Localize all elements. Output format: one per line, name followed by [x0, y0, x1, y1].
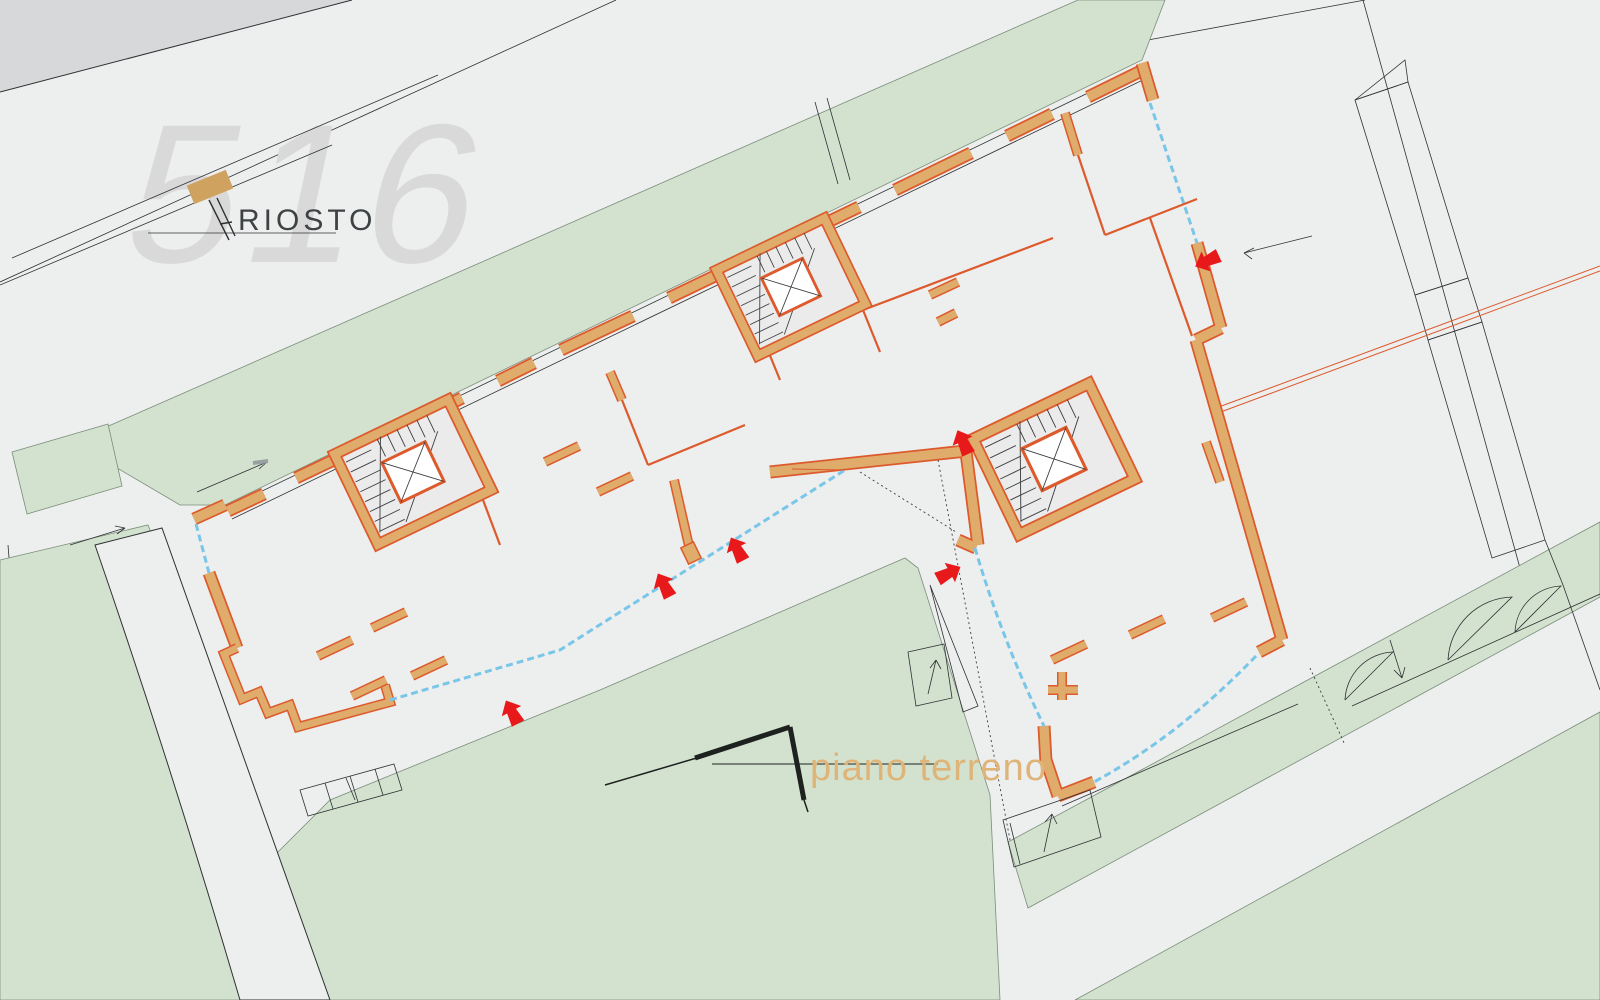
- site-plan-page: 516 RIOSTO piano terreno: [0, 0, 1600, 1000]
- floor-label: piano terreno: [810, 747, 1047, 789]
- site-plan-drawing: 516 RIOSTO piano terreno: [0, 0, 1600, 1000]
- logo-name: RIOSTO: [238, 204, 376, 237]
- logo-number: 516: [109, 84, 510, 305]
